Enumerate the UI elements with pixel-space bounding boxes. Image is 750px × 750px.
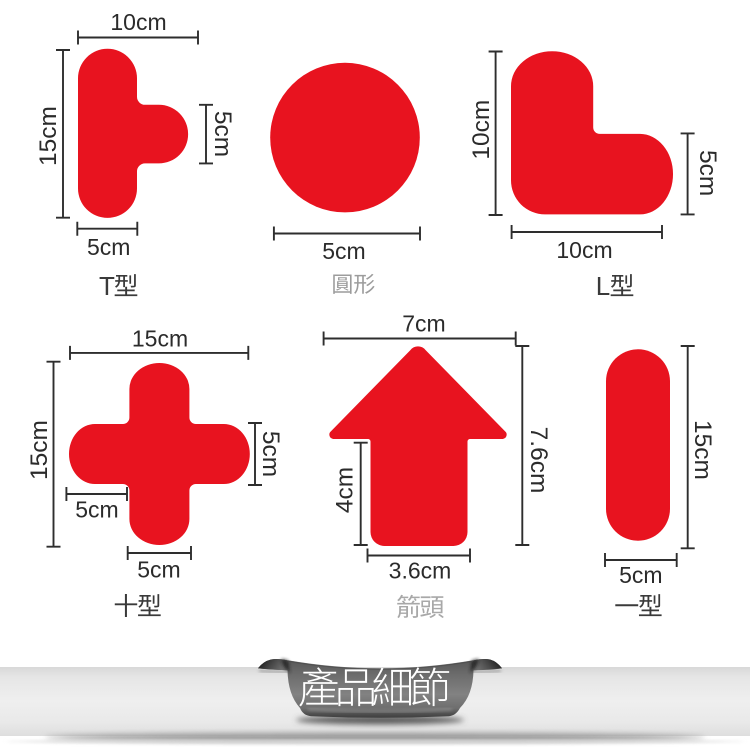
svg-text:10cm: 10cm [468, 100, 495, 160]
svg-text:4cm: 4cm [332, 467, 359, 513]
svg-text:5cm: 5cm [694, 150, 721, 196]
svg-text:5cm: 5cm [87, 234, 130, 260]
svg-text:T: T [99, 271, 115, 301]
svg-text:15cm: 15cm [26, 420, 53, 480]
svg-text:L: L [596, 271, 610, 301]
svg-text:15cm: 15cm [689, 420, 716, 480]
svg-text:7.6cm: 7.6cm [525, 427, 552, 494]
svg-text:5cm: 5cm [75, 497, 118, 523]
svg-text:15cm: 15cm [132, 326, 188, 352]
svg-text:5cm: 5cm [619, 562, 662, 588]
svg-text:5cm: 5cm [257, 431, 284, 477]
svg-text:15cm: 15cm [35, 106, 62, 166]
svg-text:5cm: 5cm [137, 556, 180, 582]
svg-text:5cm: 5cm [209, 111, 236, 157]
svg-text:7cm: 7cm [402, 311, 445, 337]
svg-text:5cm: 5cm [322, 238, 365, 264]
svg-text:10cm: 10cm [110, 9, 166, 35]
svg-text:10cm: 10cm [556, 237, 612, 263]
svg-text:3.6cm: 3.6cm [389, 557, 452, 583]
